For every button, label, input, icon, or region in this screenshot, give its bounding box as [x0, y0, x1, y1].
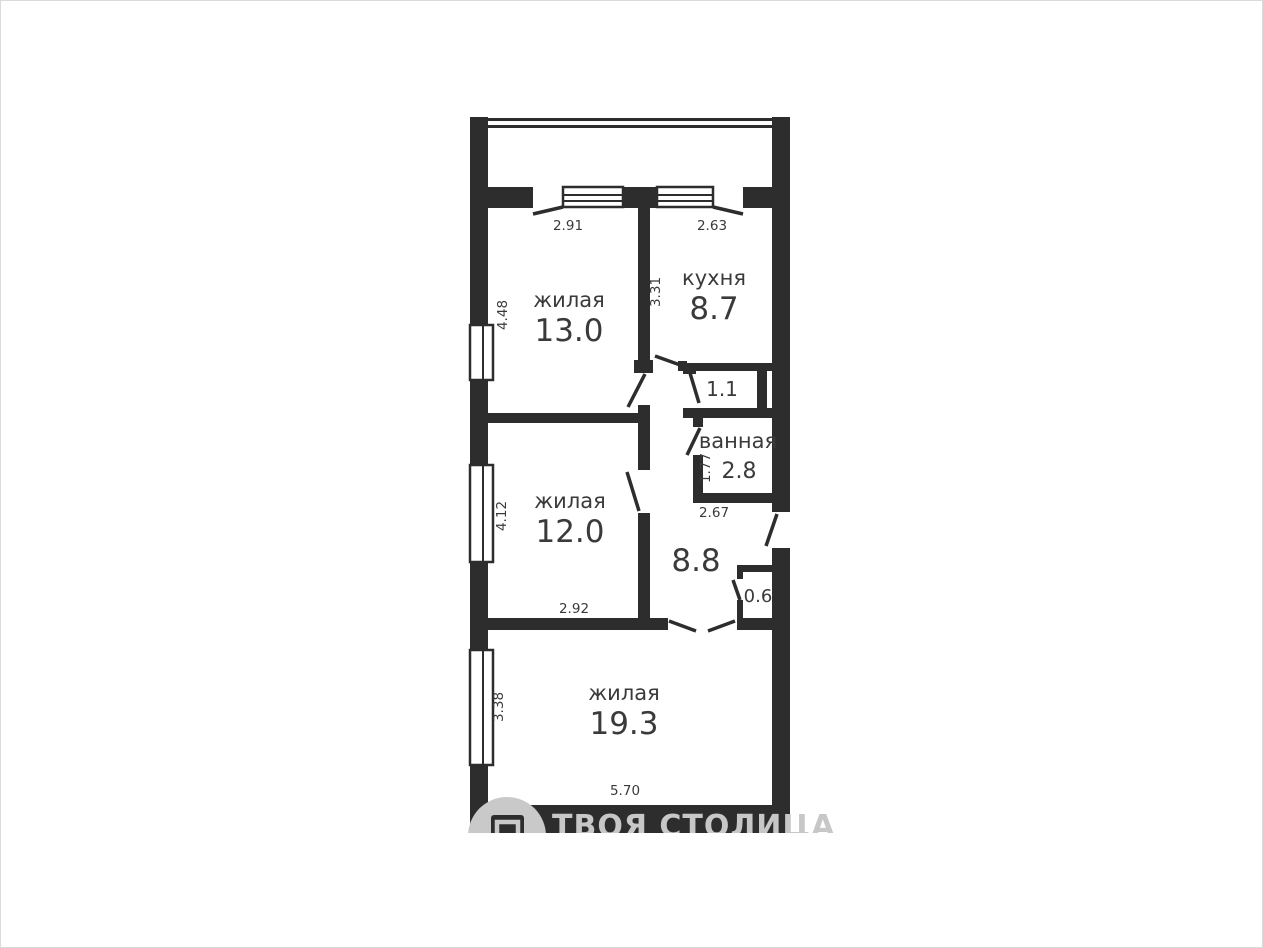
wall-segment — [693, 418, 703, 427]
wall-segment — [683, 363, 790, 371]
wall-segment — [488, 187, 533, 208]
wall-segment — [742, 565, 772, 572]
balcony-rail-line — [488, 118, 772, 121]
door-storage — [733, 580, 740, 600]
balcony-rail-line — [488, 125, 772, 128]
wall-segment — [470, 618, 668, 630]
room-living13-label: жилая — [533, 288, 605, 312]
watermark: ТВОЯ СТОЛИЦА — [0, 797, 1263, 948]
wall-segment — [693, 493, 790, 503]
wall-segment — [623, 187, 657, 208]
door-living13 — [628, 374, 645, 407]
room-storage-area: 0.6 — [744, 586, 773, 607]
room-bathroom-label: ванная — [699, 429, 777, 453]
page-background: жилая 13.0 кухня 8.7 1.1 ванная 2.8 жила… — [0, 0, 1263, 948]
dim-living12-width: 2.92 — [559, 601, 589, 617]
dim-living19-height: 3.38 — [491, 692, 507, 722]
window-jamb-line — [713, 207, 743, 214]
room-living13-area: 13.0 — [534, 313, 603, 349]
door-closet — [690, 373, 699, 403]
room-living12-area: 12.0 — [535, 514, 604, 550]
room-closet-area: 1.1 — [706, 377, 738, 401]
wall-segment — [683, 408, 790, 418]
wall-segment — [737, 565, 743, 579]
dim-living13-width: 2.91 — [553, 218, 583, 234]
room-kitchen-area: 8.7 — [689, 291, 738, 327]
wall-segment — [638, 423, 650, 470]
window-kitchen-top — [657, 187, 713, 207]
room-bathroom-area: 2.8 — [722, 459, 757, 484]
window-living13-top — [563, 187, 623, 207]
wall-segment — [470, 562, 488, 650]
wall-segment — [470, 380, 488, 465]
wall-segment — [470, 208, 488, 325]
room-kitchen-label: кухня — [682, 266, 746, 290]
door-entrance — [766, 514, 777, 546]
dim-living13-height: 4.48 — [495, 300, 511, 330]
room-living19-label: жилая — [588, 681, 660, 705]
wall-segment — [743, 187, 790, 208]
wall-segment — [772, 208, 790, 512]
floor-plan: жилая 13.0 кухня 8.7 1.1 ванная 2.8 жила… — [0, 0, 1263, 948]
wall-segment — [737, 618, 790, 630]
wall-segment — [772, 548, 790, 833]
wall-segment — [470, 117, 488, 210]
window-jamb-line — [533, 207, 563, 214]
wall-segment — [757, 371, 767, 408]
dim-living12-height: 4.12 — [494, 501, 510, 531]
dim-living19-width: 5.70 — [610, 783, 640, 799]
window-living13-left — [470, 325, 493, 380]
room-living19-area: 19.3 — [589, 706, 658, 742]
wall-segment — [488, 413, 650, 423]
door-living12 — [627, 472, 639, 511]
room-hall-area: 8.8 — [671, 543, 720, 579]
watermark-crop-mask — [0, 833, 1263, 948]
room-labels: жилая 13.0 кухня 8.7 1.1 ванная 2.8 жила… — [533, 266, 777, 742]
window-living12-left — [470, 465, 493, 562]
dim-kitchen-height: 3.31 — [648, 277, 664, 307]
dim-bathroom-height: 1.77 — [698, 453, 714, 483]
door-living19-right-leaf — [708, 621, 735, 631]
door-living19-left-leaf — [669, 621, 696, 631]
wall-segment — [634, 360, 653, 373]
dim-bathroom-width: 2.67 — [699, 505, 729, 521]
room-living12-label: жилая — [534, 489, 606, 513]
dim-kitchen-width: 2.63 — [697, 218, 727, 234]
wall-segment — [638, 513, 650, 620]
wall-segment — [737, 600, 743, 620]
window-living19-left — [470, 650, 493, 765]
